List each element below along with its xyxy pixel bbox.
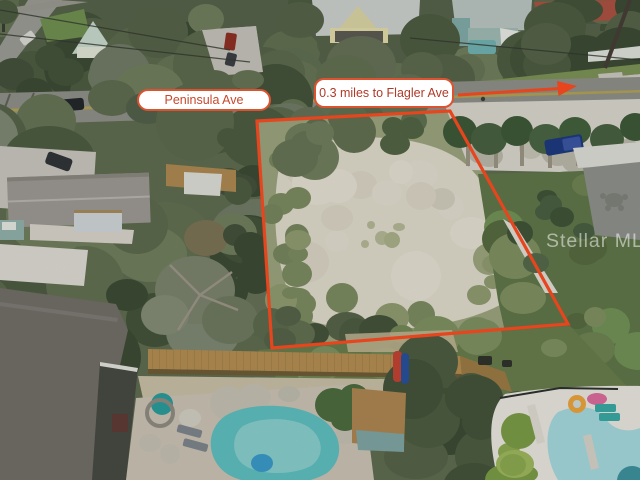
svg-text:Stellar MLS: Stellar MLS [546, 230, 640, 252]
